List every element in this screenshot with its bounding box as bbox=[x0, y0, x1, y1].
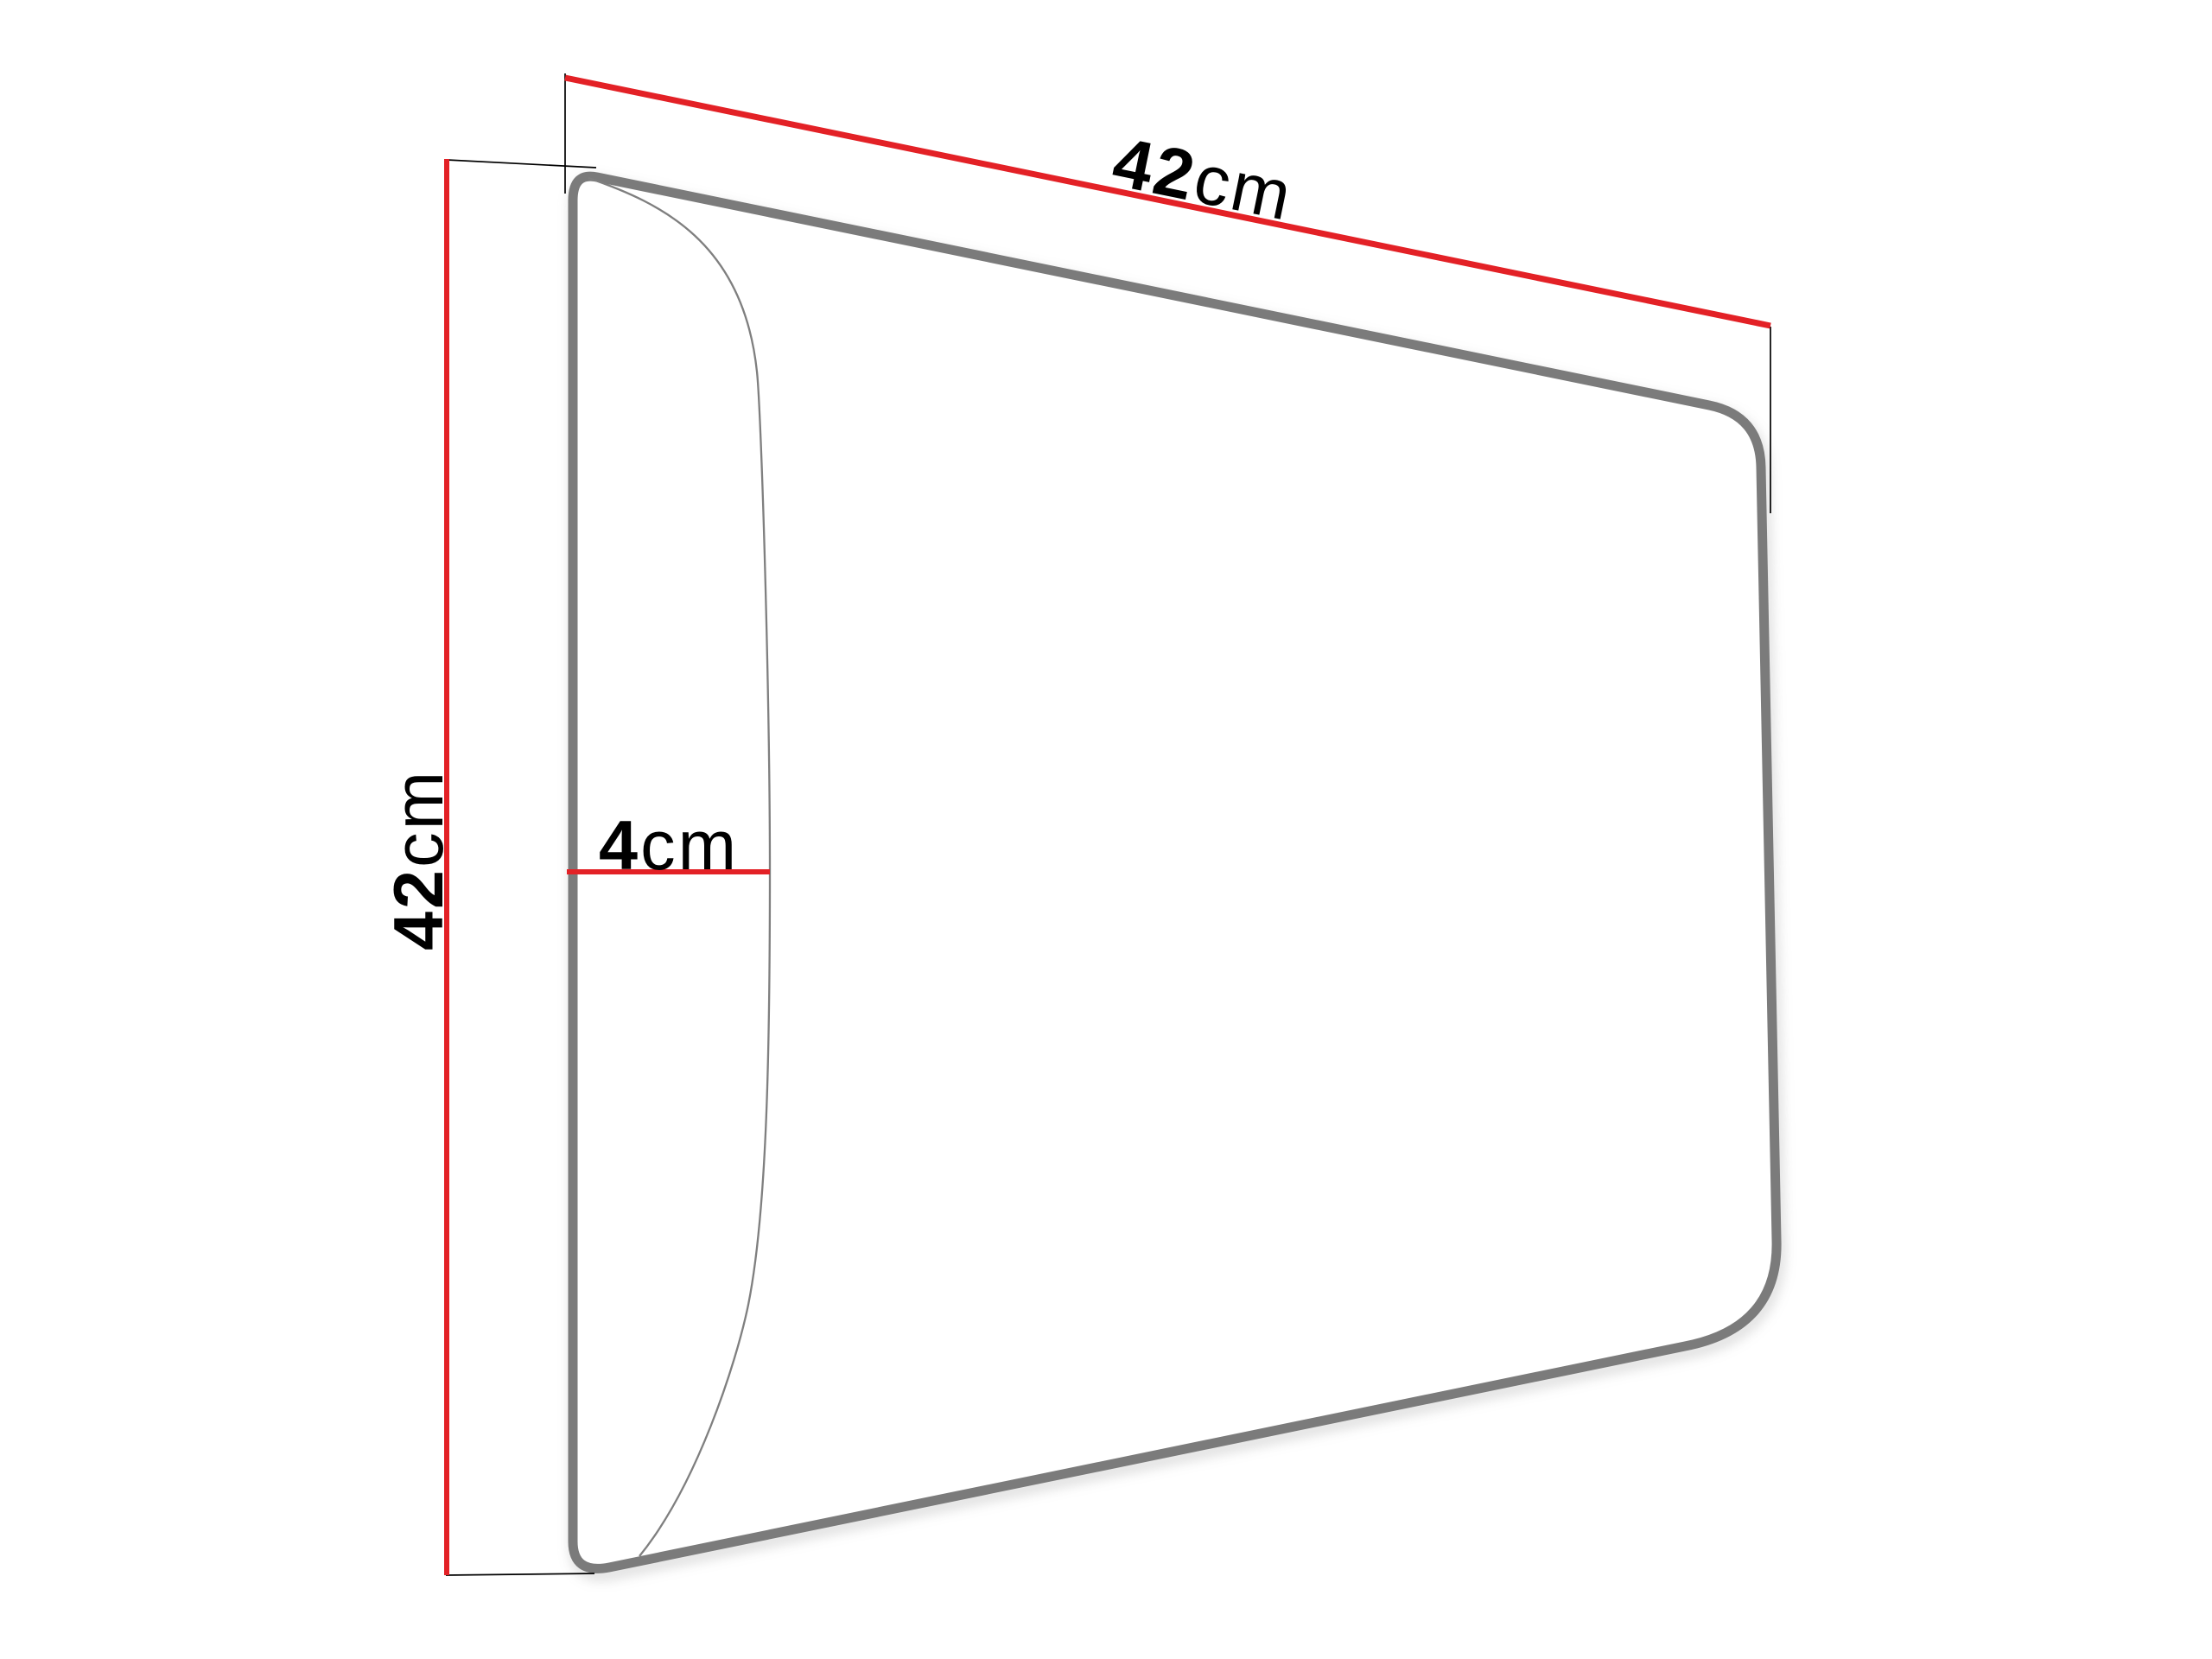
svg-text:42cm: 42cm bbox=[380, 769, 458, 950]
svg-text:42cm: 42cm bbox=[1106, 123, 1300, 236]
svg-text:4cm: 4cm bbox=[599, 807, 739, 885]
